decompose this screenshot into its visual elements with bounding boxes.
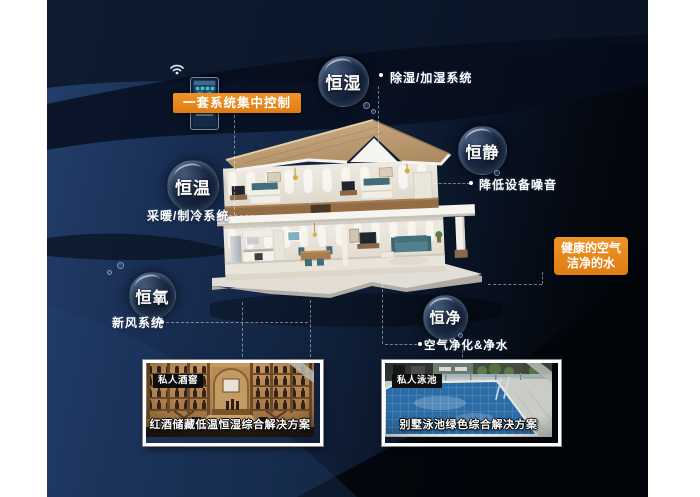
dashed-connector <box>382 284 383 344</box>
bubble-label: 恒湿 <box>326 69 362 94</box>
bullet-dot <box>379 73 383 77</box>
dashed-connector <box>378 86 379 148</box>
highlight-box: 健康的空气 洁净的水 <box>554 237 628 275</box>
small-bubble <box>371 109 376 114</box>
dashed-connector <box>488 284 542 285</box>
bubble-constant-temperature: 恒温 <box>167 160 219 212</box>
bubble-label: 恒净 <box>429 307 461 328</box>
photo-tag: 私人酒窖 <box>153 374 203 388</box>
wine-cellar-image: 私人酒窖 红酒储藏低温恒湿综合解决方案 <box>146 363 314 437</box>
feature-desc-humidity: 除湿/加湿系统 <box>390 69 472 86</box>
dashed-connector <box>385 344 417 345</box>
dashed-connector <box>234 115 235 215</box>
photo-card-pool: 私人泳池 别墅泳池绿色综合解决方案 <box>382 360 561 446</box>
small-bubble <box>107 270 112 275</box>
bullet-dot <box>418 342 422 346</box>
feature-desc-clean: 空气净化&净水 <box>424 337 508 353</box>
pool-image: 私人泳池 别墅泳池绿色综合解决方案 <box>385 363 552 437</box>
dashed-connector <box>166 322 308 323</box>
poster-page: 一套系统集中控制 恒湿 恒静 恒温 恒氧 恒净 除湿/加湿系统 降低设备噪音 采… <box>0 0 700 497</box>
small-bubble <box>117 262 124 269</box>
bullet-dot <box>160 320 164 324</box>
bubble-label: 恒静 <box>465 139 499 163</box>
photo-card-wine-cellar: 私人酒窖 红酒储藏低温恒湿综合解决方案 <box>143 360 323 446</box>
wifi-icon <box>169 61 185 75</box>
feature-desc-temperature: 采暖/制冷系统 <box>147 207 229 224</box>
photo-caption: 别墅泳池绿色综合解决方案 <box>385 416 552 432</box>
dark-scene-backdrop: 一套系统集中控制 恒湿 恒静 恒温 恒氧 恒净 除湿/加湿系统 降低设备噪音 采… <box>47 0 648 497</box>
bubble-constant-oxygen: 恒氧 <box>129 272 176 319</box>
dashed-connector <box>242 302 243 362</box>
dashed-connector <box>542 272 543 284</box>
photo-caption: 红酒储藏低温恒湿综合解决方案 <box>146 416 314 432</box>
dashed-connector <box>224 215 264 216</box>
highlight-line2: 洁净的水 <box>554 256 628 271</box>
feature-desc-quiet: 降低设备噪音 <box>479 176 557 193</box>
dashed-connector <box>434 183 470 184</box>
bubble-constant-humidity: 恒湿 <box>318 56 369 107</box>
feature-desc-oxygen: 新风系统 <box>112 314 164 331</box>
control-label: 一套系统集中控制 <box>173 93 301 113</box>
photo-tag: 私人泳池 <box>392 374 442 388</box>
bubble-label: 恒温 <box>175 174 211 199</box>
bullet-dot <box>218 213 222 217</box>
dashed-connector <box>310 300 311 362</box>
bubble-constant-quiet: 恒静 <box>458 126 507 175</box>
bubble-label: 恒氧 <box>135 284 169 308</box>
highlight-line1: 健康的空气 <box>554 241 628 256</box>
small-bubble <box>363 102 370 109</box>
bullet-dot <box>469 181 473 185</box>
